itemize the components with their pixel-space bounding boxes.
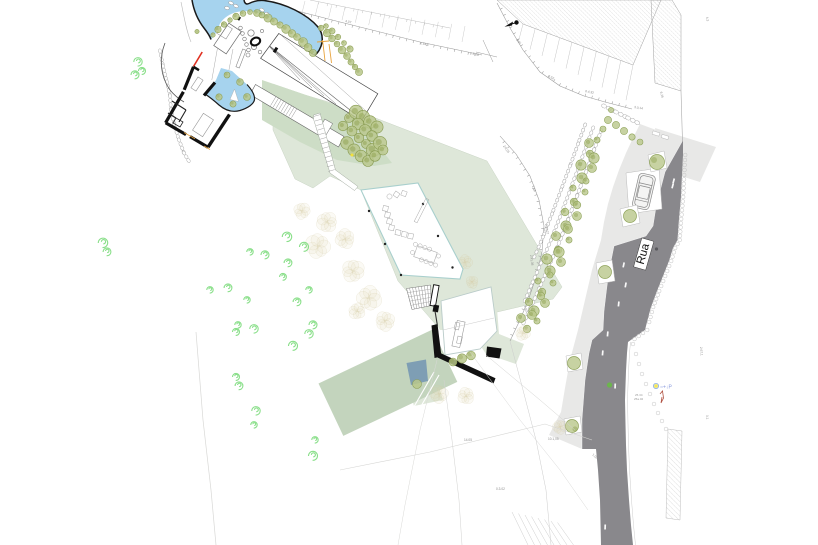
svg-text:3.1: 3.1 xyxy=(705,415,709,420)
svg-text:2.64,1: 2.64,1 xyxy=(420,41,430,47)
svg-text:10.1,05: 10.1,05 xyxy=(548,437,559,441)
svg-text:2.6,05: 2.6,05 xyxy=(502,144,510,154)
svg-text:2.18: 2.18 xyxy=(531,185,537,192)
svg-text:p.5,28: p.5,28 xyxy=(470,51,480,57)
svg-text:2.67,1: 2.67,1 xyxy=(699,347,704,356)
svg-text:25a.02: 25a.02 xyxy=(634,397,644,401)
svg-text:8.91: 8.91 xyxy=(515,38,522,45)
svg-text:○+↓P: ○+↓P xyxy=(660,385,672,391)
svg-text:3.0,14: 3.0,14 xyxy=(634,105,644,111)
svg-text:6.4,32: 6.4,32 xyxy=(585,89,595,95)
svg-text:4.3: 4.3 xyxy=(705,16,710,21)
svg-text:2.02: 2.02 xyxy=(523,305,529,312)
svg-text:6.25: 6.25 xyxy=(659,91,665,98)
svg-text:14.05: 14.05 xyxy=(464,438,472,442)
svg-text:0.3.02: 0.3.02 xyxy=(496,487,505,491)
